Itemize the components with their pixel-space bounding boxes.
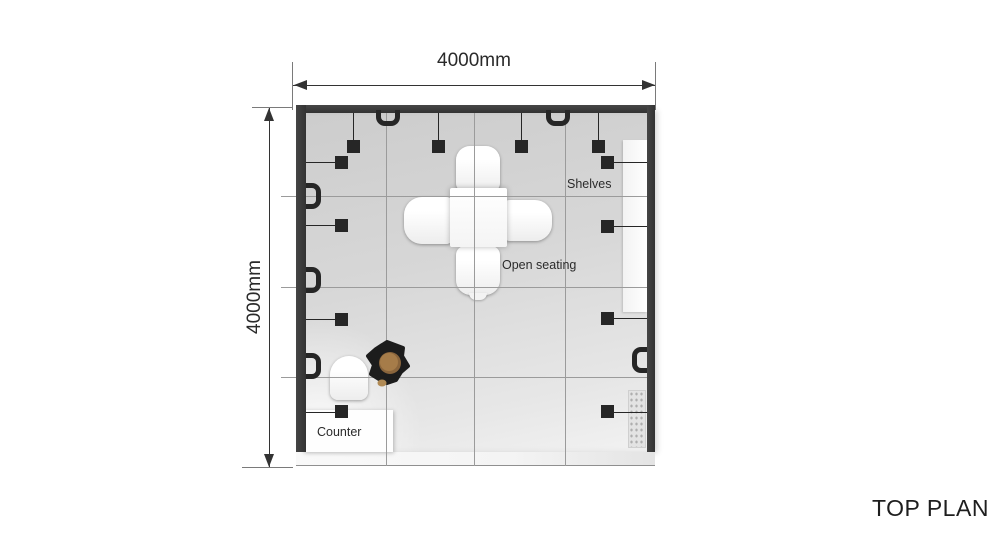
page-title: TOP PLAN	[872, 495, 989, 522]
rail-hook	[306, 267, 321, 293]
wall-bracket	[335, 156, 348, 169]
wall-bracket	[601, 312, 614, 325]
entrance-apron	[296, 452, 655, 466]
shelf-panel	[623, 140, 647, 197]
arrowhead-up-icon	[264, 108, 274, 121]
height-dimension-label: 4000mm	[245, 237, 265, 357]
arrowhead-right-icon	[642, 80, 655, 90]
bracket-arm	[306, 412, 335, 413]
pendant-light	[432, 140, 445, 153]
arrowhead-down-icon	[264, 454, 274, 467]
bracket-arm	[306, 319, 335, 320]
wall-bracket	[335, 313, 348, 326]
label-counter: Counter	[317, 425, 361, 439]
grid-line-horizontal	[281, 287, 647, 288]
bracket-arm	[614, 412, 647, 413]
top-dimension-line	[293, 85, 655, 86]
chair-right	[502, 200, 552, 241]
grid-line-vertical	[386, 113, 387, 466]
bracket-arm	[614, 226, 647, 227]
label-shelves: Shelves	[567, 177, 611, 191]
rail-hook	[546, 110, 570, 126]
wall-bracket	[335, 405, 348, 418]
bracket-arm	[614, 162, 647, 163]
chair-top	[456, 146, 500, 192]
wall-left	[296, 105, 306, 452]
label-open-seating: Open seating	[502, 258, 576, 272]
pendant-stem	[438, 113, 439, 140]
pendant-stem	[598, 113, 599, 140]
pendant-light	[515, 140, 528, 153]
wall-bracket	[601, 405, 614, 418]
wall-right	[647, 105, 655, 452]
pendant-stem	[353, 113, 354, 140]
wall-bracket	[601, 220, 614, 233]
bracket-arm	[306, 162, 335, 163]
rail-hook	[306, 353, 321, 379]
dimension-extension-line	[242, 467, 293, 468]
dimension-extension-line	[292, 62, 293, 110]
grid-line-vertical	[474, 113, 475, 466]
person-figure	[362, 336, 414, 390]
wall-bracket	[335, 219, 348, 232]
wall-top	[296, 105, 655, 113]
shelf-panel	[623, 197, 647, 312]
grid-line-horizontal	[281, 196, 647, 197]
wall-bracket	[601, 156, 614, 169]
dimension-extension-line	[655, 62, 656, 110]
chair-left	[404, 197, 454, 244]
grid-line-horizontal	[281, 377, 647, 378]
rail-hook	[632, 347, 647, 373]
bracket-arm	[306, 225, 335, 226]
pendant-stem	[521, 113, 522, 140]
left-dimension-line	[269, 108, 270, 467]
grid-line-vertical	[565, 113, 566, 466]
pendant-light	[347, 140, 360, 153]
bracket-arm	[614, 318, 647, 319]
arrowhead-left-icon	[294, 80, 307, 90]
pendant-light	[592, 140, 605, 153]
rail-hook	[306, 183, 321, 209]
rail-hook	[376, 110, 400, 126]
floor-plan-canvas: 4000mm 4000mm	[0, 0, 1000, 554]
textured-display-item	[628, 390, 646, 448]
width-dimension-label: 4000mm	[414, 50, 534, 72]
